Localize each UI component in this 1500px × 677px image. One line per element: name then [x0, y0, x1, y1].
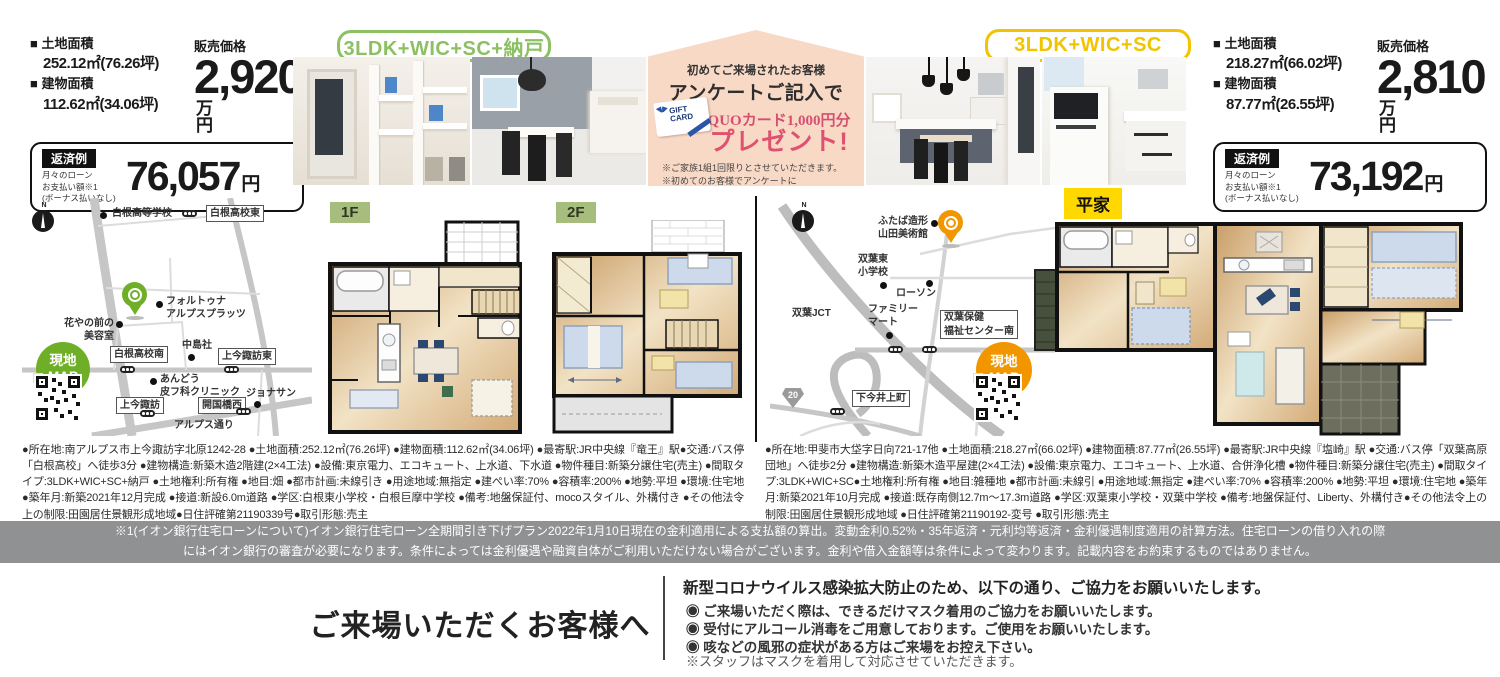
gift-card-icon: GIFT CARD: [653, 97, 711, 137]
loan-note-banner: ※1(イオン銀行住宅ローンについて)イオン銀行住宅ローン全期間引き下げプラン20…: [0, 521, 1500, 563]
repayment-amount: 76,057: [126, 153, 239, 199]
building-area-label: ■ 建物面積: [30, 76, 188, 92]
map-right: N ふたば造形 山田美術館 双葉東 小学校 ローソン 双葉JCT ファミリー マ…: [770, 198, 1055, 436]
poi-label: 中島社: [182, 340, 212, 353]
poi-dot: [156, 301, 163, 308]
poi-label: ジョナサン: [246, 388, 296, 401]
quo-card-line: QUOカード1,000円分: [694, 109, 864, 130]
chair: [502, 131, 520, 175]
land-area-label: ■ 土地面積: [30, 36, 188, 52]
chair: [934, 143, 948, 183]
compass-icon: N: [792, 204, 816, 234]
poi-dot: [254, 401, 261, 408]
window: [1044, 57, 1084, 91]
floor-label-hiraya: 平家: [1064, 188, 1122, 219]
intersection-label: 上今諏訪東: [218, 348, 276, 365]
compass-icon: N: [32, 204, 56, 234]
property-left-info: ■ 土地面積 252.12㎡(76.26坪) ■ 建物面積 112.62㎡(34…: [30, 36, 298, 212]
traffic-light-icon: [888, 346, 903, 353]
poi-label: 白根高等学校: [112, 208, 172, 221]
gift-card-text: GIFT CARD: [669, 105, 694, 124]
land-area-value: 218.27㎡(66.02坪): [1226, 52, 1371, 73]
poi-dot: [100, 212, 107, 219]
covid-bullet: ◉ ご来場いただく際は、できるだけマスク着用のご協力をお願いいたします。: [686, 600, 1161, 620]
counter: [1124, 111, 1186, 121]
repayment-badge: 返済例: [1225, 149, 1279, 168]
intersection-label: 白根高校東: [206, 205, 264, 222]
building-area-value: 87.77㎡(26.55坪): [1226, 93, 1371, 114]
covid-staff-note: ※スタッフはマスクを着用して対応させていただきます。: [686, 651, 1022, 670]
building-area-value: 112.62㎡(34.06坪): [43, 93, 188, 114]
poi-dot: [116, 321, 123, 328]
floorplan-hiraya-drawing: [1032, 212, 1484, 438]
floorplan-1f: 1F: [322, 198, 540, 436]
traffic-light-icon: [236, 408, 251, 415]
chair: [556, 133, 572, 177]
intersection-label: 白根高校南: [110, 346, 168, 363]
photo-kitchen-galley: [1042, 57, 1186, 185]
land-area-label: ■ 土地面積: [1213, 36, 1371, 52]
map-pin-icon: [938, 210, 964, 246]
range-hood: [1138, 69, 1168, 89]
campaign-line1: 初めてご来場されたお客様: [648, 62, 864, 78]
price-value: 2,920: [194, 50, 302, 103]
campaign-note-1: ※ご家族1組1回限りとさせていただきます。: [662, 162, 854, 175]
photo-dining-room: [472, 57, 646, 185]
road-name-label: アルプス通り: [174, 420, 234, 433]
pendant-lamp: [946, 57, 948, 85]
traffic-light-icon: [182, 210, 197, 217]
pin-place-label: ふたば造形 山田美術館: [866, 216, 928, 241]
traffic-light-icon: [922, 346, 937, 353]
price-value: 2,810: [1377, 50, 1485, 103]
intersection-label: 下今井上町: [852, 390, 910, 407]
oven: [1054, 93, 1098, 119]
campaign-note-2: ※初めてのお客様でアンケートに ご記入をいただいた方が対象です。: [662, 175, 854, 200]
ribbon-icon: [656, 106, 669, 117]
chair: [528, 135, 546, 181]
shelf: [413, 61, 423, 185]
pendant-lamp: [928, 57, 930, 77]
poi-label: ファミリー マート: [868, 304, 918, 329]
poi-dot: [886, 332, 893, 339]
poi-label: 双葉東 小学校: [858, 254, 888, 279]
poi-dot: [931, 220, 938, 227]
traffic-light-icon: [140, 410, 155, 417]
covid-heading: 新型コロナウイルス感染拡大防止のため、以下の通り、ご協力をお願いいたします。: [683, 576, 1270, 598]
repayment-unit: 円: [241, 174, 260, 195]
property-divider: [755, 196, 757, 442]
present-text: プレゼント!: [694, 130, 864, 155]
property-left-details: ●所在地:南アルプス市上今諏訪字北原1242-28 ●土地面積:252.12㎡(…: [22, 442, 744, 523]
pin-place-label: フォルトゥナ アルプスプラッツ: [166, 296, 246, 321]
floorplan-2f-drawing: [548, 220, 746, 436]
property-right-details: ●所在地:甲斐市大垈字日向721-17他 ●土地面積:218.27㎡(66.02…: [765, 442, 1487, 523]
chair: [914, 139, 928, 179]
visitor-section-title: ご来場いただくお客様へ: [300, 601, 660, 645]
range-hood: [978, 73, 1004, 95]
chair: [954, 141, 968, 181]
qr-code: [34, 374, 42, 382]
building-area-label: ■ 建物面積: [1213, 76, 1371, 92]
map-pin-icon: [122, 282, 148, 318]
floorplan-1f-drawing: [322, 220, 540, 436]
photo-pantry-shelves: [293, 57, 470, 185]
traffic-light-icon: [830, 408, 845, 415]
poi-label: 花やの前の 美容室: [52, 318, 114, 343]
floor-label-1f: 1F: [330, 202, 370, 223]
property-right-info: ■ 土地面積 218.27㎡(66.02坪) ■ 建物面積 87.77㎡(26.…: [1213, 36, 1481, 212]
window: [480, 75, 520, 111]
traffic-light-icon: [120, 366, 135, 373]
real-estate-flyer: ■ 土地面積 252.12㎡(76.26坪) ■ 建物面積 112.62㎡(34…: [0, 0, 1500, 677]
intersection-label: 双葉保健 福祉センター南: [940, 310, 1018, 339]
poi-label: ローソン: [896, 288, 936, 301]
poi-dot: [880, 282, 887, 289]
land-area-value: 252.12㎡(76.26坪): [43, 52, 188, 73]
visitor-divider: [663, 576, 665, 660]
campaign-banner: 初めてご来場されたお客様 アンケートご記入で QUOカード1,000円分 プレゼ…: [648, 30, 864, 186]
price-unit: 万円: [1379, 100, 1398, 136]
floorplan-2f: 2F: [548, 198, 746, 436]
floor-label-2f: 2F: [556, 202, 596, 223]
photo-dining-kitchen: [866, 57, 1040, 185]
poi-label: 双葉JCT: [792, 308, 831, 321]
poi-label: あんどう 皮フ科クリニック: [160, 374, 240, 399]
poi-dot: [188, 354, 195, 361]
repayment-badge: 返済例: [42, 149, 96, 168]
shelf: [369, 65, 379, 185]
traffic-light-icon: [224, 366, 239, 373]
price-unit: 万円: [196, 100, 215, 136]
poi-dot: [150, 378, 157, 385]
covid-bullet: ◉ 受付にアルコール消毒をご用意しております。ご使用をお願いいたします。: [686, 618, 1158, 638]
island-counter: [896, 119, 996, 129]
map-left: N 白根高等学校 白根高校東 フォルトゥナ アルプスプラッツ 花やの前の 美容室…: [22, 198, 312, 436]
floorplan-hiraya: 平家: [1032, 188, 1484, 438]
qr-code: [974, 374, 982, 382]
poi-dot: [926, 280, 933, 287]
